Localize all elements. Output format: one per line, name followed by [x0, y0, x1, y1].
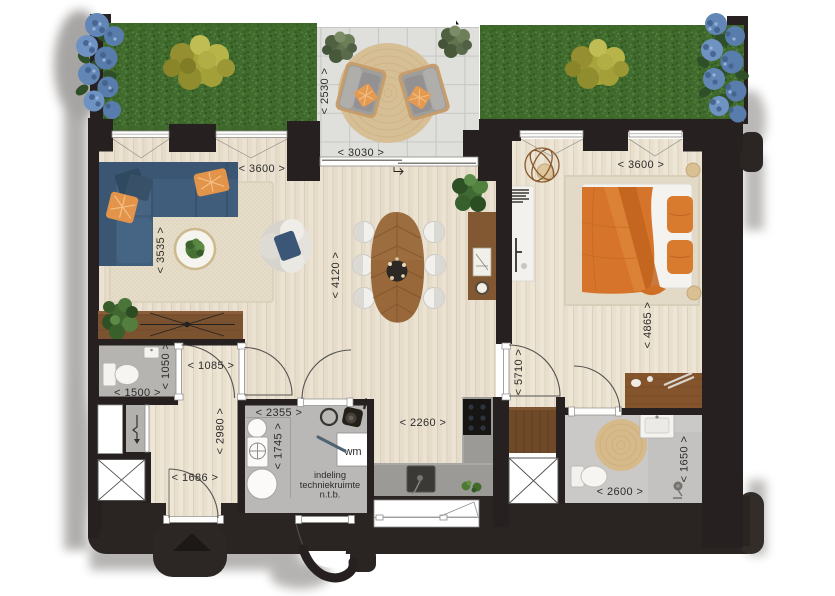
svg-text:< 5710 >: < 5710 >	[513, 349, 525, 396]
svg-text:n.t.b.: n.t.b.	[320, 490, 341, 500]
svg-text:< 1085 >: < 1085 >	[188, 360, 235, 372]
svg-text:< 2980 >: < 2980 >	[215, 408, 227, 455]
svg-text:< 2355 >: < 2355 >	[256, 407, 303, 419]
svg-text:< 3535 >: < 3535 >	[155, 227, 167, 274]
svg-text:< 1050 >: < 1050 >	[160, 343, 172, 390]
svg-text:< 1500 >: < 1500 >	[114, 387, 161, 399]
svg-text:< 1686 >: < 1686 >	[172, 472, 219, 484]
svg-text:indeling: indeling	[314, 470, 346, 480]
svg-text:< 3600 >: < 3600 >	[239, 163, 286, 175]
svg-text:< 3600 >: < 3600 >	[618, 159, 665, 171]
svg-text:< 1650 >: < 1650 >	[679, 436, 691, 483]
svg-text:< 2600 >: < 2600 >	[597, 486, 644, 498]
svg-text:techniekruimte: techniekruimte	[300, 480, 360, 490]
svg-text:< 4865 >: < 4865 >	[642, 302, 654, 349]
svg-text:< 2530 >: < 2530 >	[319, 68, 331, 115]
svg-text:< 2260 >: < 2260 >	[400, 417, 447, 429]
svg-text:< 4120 >: < 4120 >	[330, 252, 342, 299]
svg-text:< 1745 >: < 1745 >	[273, 423, 285, 470]
svg-text:wm: wm	[343, 446, 361, 458]
svg-text:< 3030 >: < 3030 >	[338, 147, 385, 159]
